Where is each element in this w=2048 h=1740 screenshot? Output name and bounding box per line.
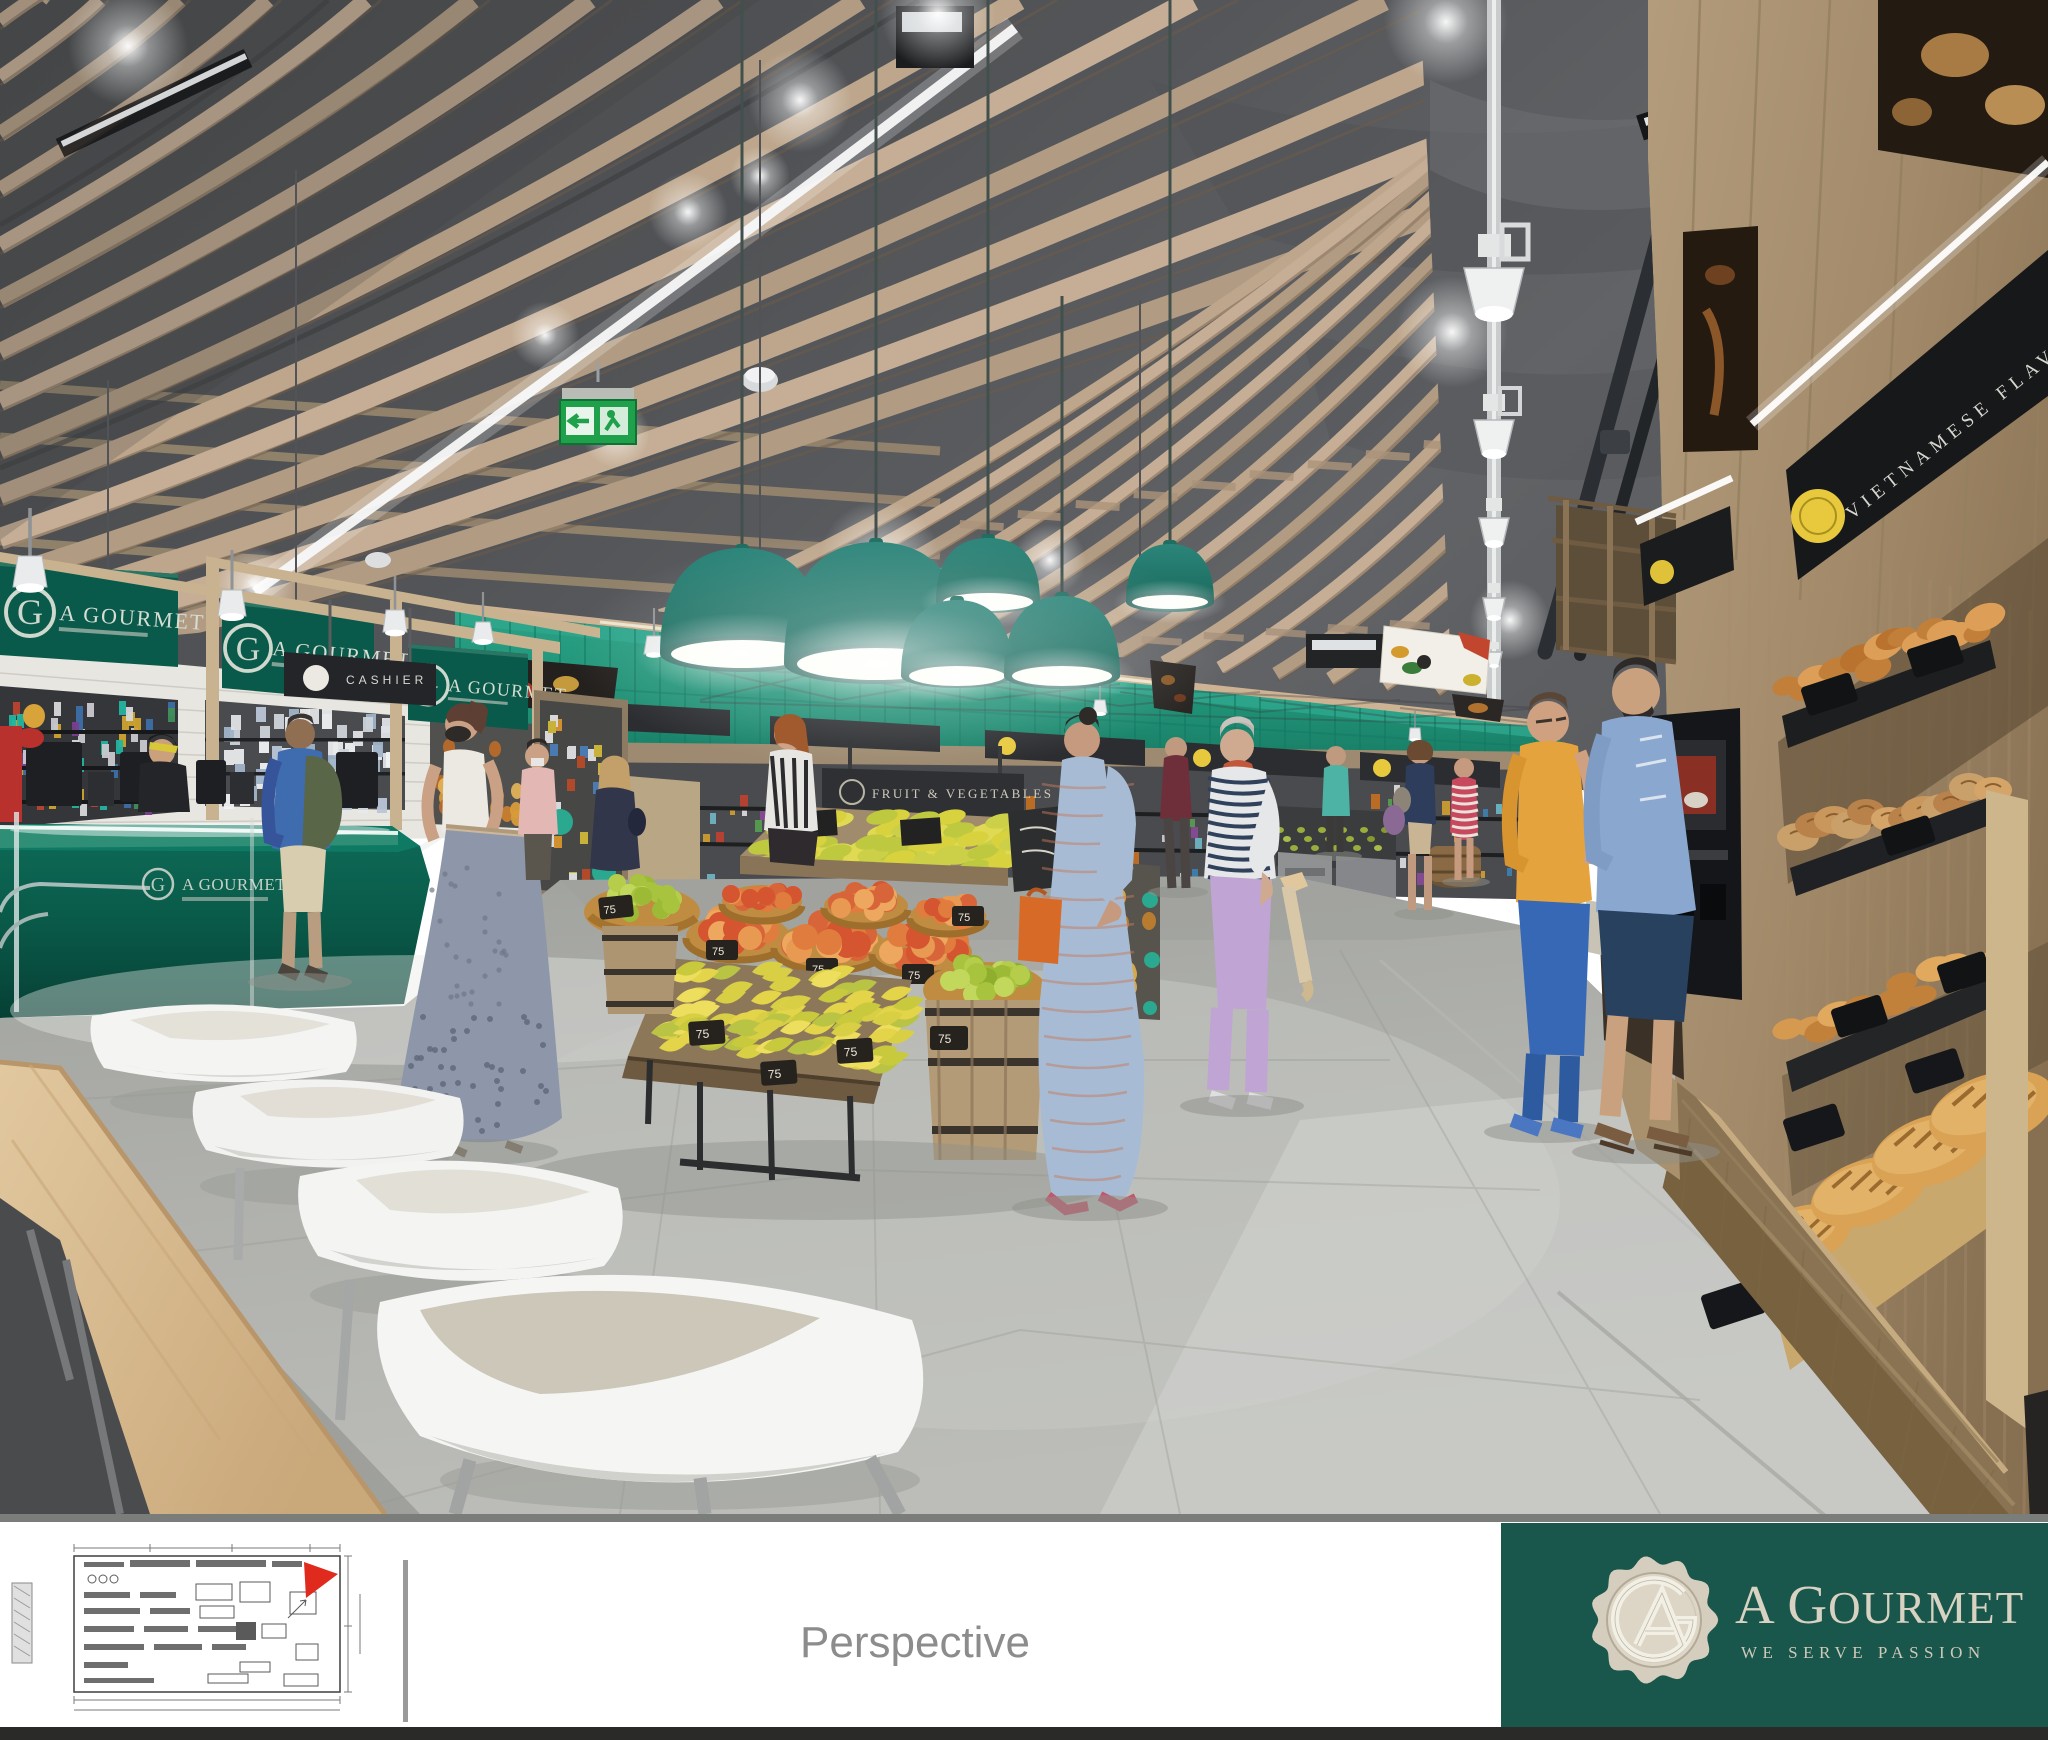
svg-text:CASHIER: CASHIER — [346, 673, 427, 687]
svg-text:FRUIT & VEGETABLES: FRUIT & VEGETABLES — [872, 786, 1053, 801]
svg-text:G: G — [151, 874, 165, 896]
svg-text:G: G — [17, 592, 43, 632]
svg-text:75: 75 — [843, 1045, 858, 1060]
svg-text:75: 75 — [767, 1067, 782, 1082]
svg-text:75: 75 — [695, 1027, 710, 1042]
svg-text:A GOURMET: A GOURMET — [182, 875, 286, 894]
svg-text:75: 75 — [603, 904, 616, 917]
svg-text:75: 75 — [712, 946, 724, 958]
svg-text:75: 75 — [958, 912, 970, 924]
svg-text:75: 75 — [938, 1032, 952, 1046]
svg-text:G: G — [236, 631, 261, 668]
